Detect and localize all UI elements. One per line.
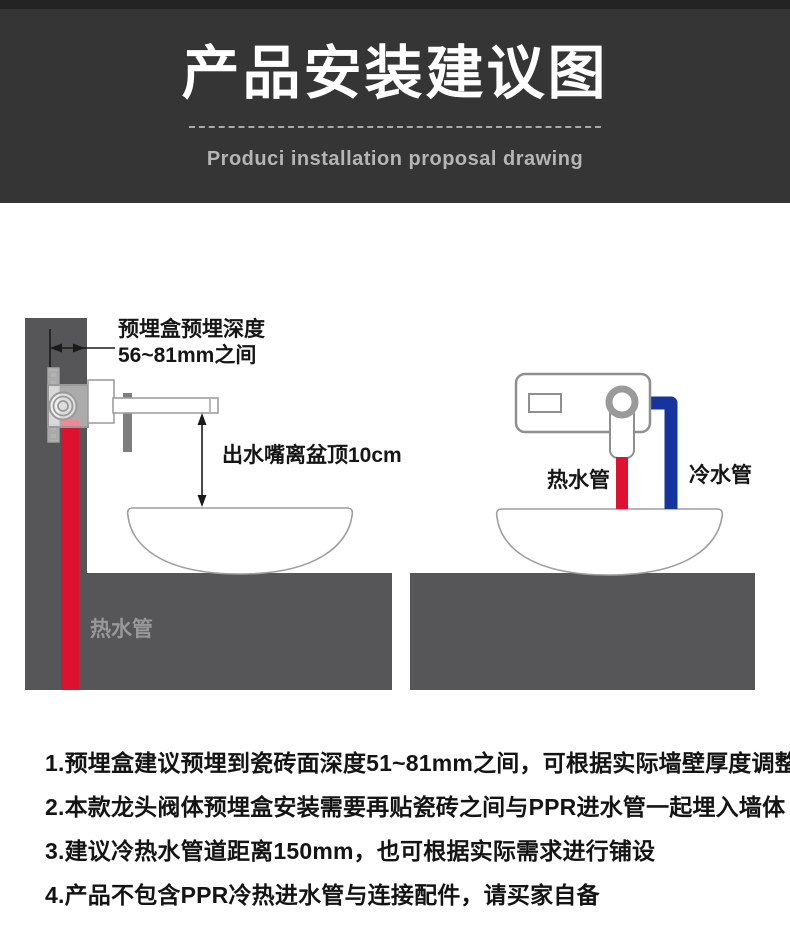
page-title: 产品安装建议图	[0, 33, 790, 115]
page-subtitle: Produci installation proposal drawing	[0, 148, 790, 171]
installation-notes: 1.预埋盒建议预埋到瓷砖面深度51~81mm之间，可根据实际墙壁厚度调整 2.本…	[0, 720, 790, 917]
cold-water-pipe	[651, 403, 671, 509]
hot-water-pipe-left	[61, 420, 79, 690]
right-counter-block	[410, 573, 755, 690]
right-basin	[497, 509, 723, 575]
valve-box-window	[529, 394, 561, 412]
left-basin	[128, 508, 353, 574]
spout-ring	[609, 389, 635, 415]
spout-escutcheon	[88, 380, 114, 423]
spout-height-note: 出水嘴离盆顶10cm	[222, 443, 402, 468]
note-item-2: 2.本款龙头阀体预埋盒安装需要再贴瓷砖之间与PPR进水管一起埋入墙体	[45, 785, 770, 829]
hot-water-pipe-right	[616, 457, 628, 509]
header-dashed-divider	[189, 126, 601, 128]
note-item-4: 4.产品不包含PPR冷热进水管与连接配件，请买家自备	[45, 873, 770, 917]
hot-pipe-label-right: 热水管	[547, 468, 610, 493]
note-item-1: 1.预埋盒建议预埋到瓷砖面深度51~81mm之间，可根据实际墙壁厚度调整	[45, 741, 770, 785]
installation-diagram: 预埋盒预埋深度 56~81mm之间 出水嘴离盆顶10cm 热水管 热水管 冷水管	[0, 203, 790, 720]
faucet-spout	[113, 398, 218, 413]
note-item-3: 3.建议冷热水管道距离150mm，也可根据实际需求进行铺设	[45, 829, 770, 873]
cold-pipe-label-right: 冷水管	[689, 463, 752, 488]
header-top-strip	[0, 0, 790, 9]
dim-arrow-up	[198, 413, 207, 425]
depth-note-line1: 预埋盒预埋深度	[118, 317, 265, 342]
header-banner: 产品安装建议图 Produci installation proposal dr…	[0, 0, 790, 203]
depth-note-line2: 56~81mm之间	[118, 343, 256, 368]
dim-arrow-down	[198, 495, 207, 507]
hot-pipe-label-left: 热水管	[90, 617, 153, 642]
